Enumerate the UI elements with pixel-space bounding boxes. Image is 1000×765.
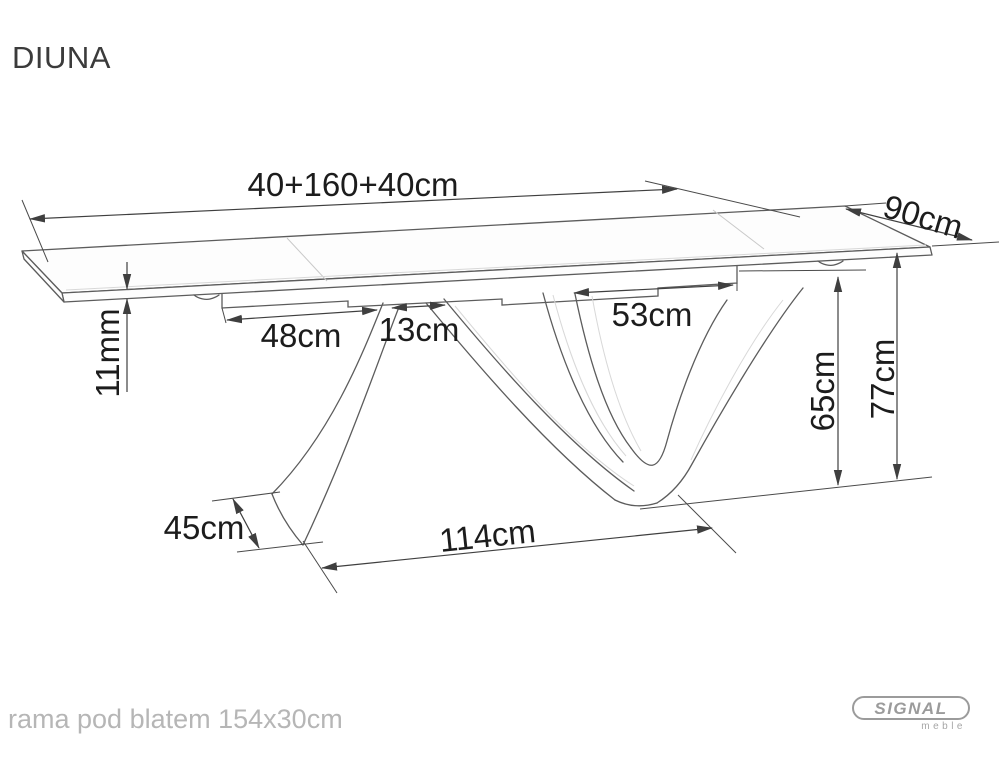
- dim-strut-width: [392, 305, 445, 308]
- dim-right-overhang: [574, 285, 733, 293]
- dimension-drawing: 40+160+40cm 90cm 11mm 48cm 13cm 53cm 65c…: [0, 0, 1000, 765]
- right-foot: [615, 500, 657, 506]
- brand-logo: SIGNAL meble: [852, 696, 976, 740]
- label-top-length: 40+160+40cm: [247, 166, 458, 203]
- label-total-height: 77cm: [864, 339, 901, 420]
- label-top-thickness: 11mm: [89, 308, 126, 397]
- logo-subtext: meble: [921, 721, 966, 732]
- label-base-depth: 45cm: [164, 509, 245, 546]
- label-left-overhang: 48cm: [261, 317, 342, 354]
- table-base: [272, 288, 803, 545]
- label-right-overhang: 53cm: [612, 296, 693, 333]
- floor-line: [640, 477, 932, 509]
- logo-text: SIGNAL: [874, 700, 947, 717]
- tabletop: [22, 206, 932, 308]
- frame-note: rama pod blatem 154x30cm: [8, 704, 343, 735]
- label-apron-height: 65cm: [804, 351, 841, 432]
- left-foot: [272, 494, 303, 545]
- label-strut-top-width: 13cm: [379, 311, 460, 348]
- label-base-length: 114cm: [437, 512, 537, 559]
- logo-pill: SIGNAL: [852, 696, 970, 720]
- diagram-page: DIUNA: [0, 0, 1000, 765]
